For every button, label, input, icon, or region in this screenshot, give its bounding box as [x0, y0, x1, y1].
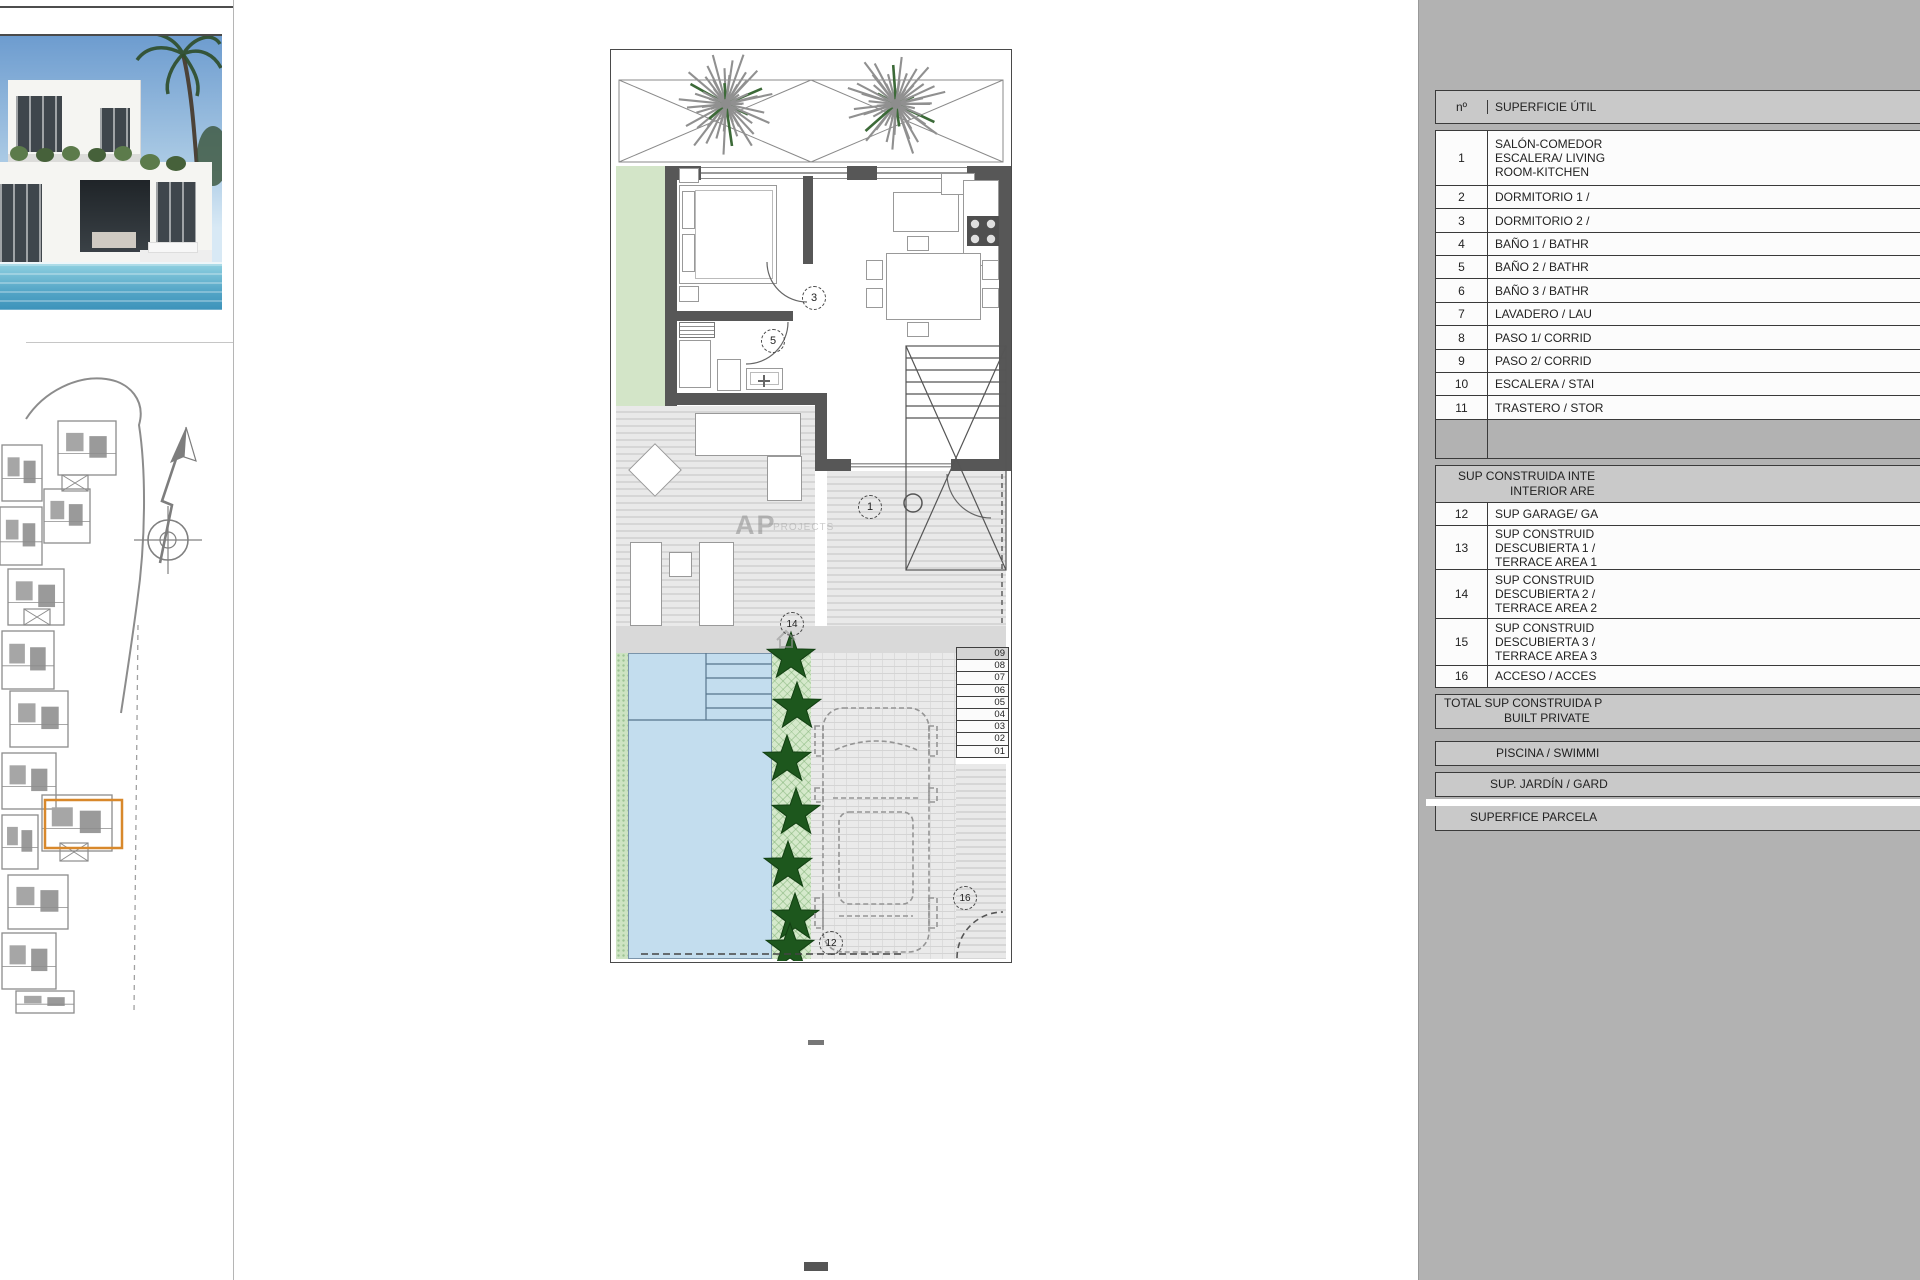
- patio-furniture: [92, 232, 136, 248]
- legend-row-8: 8 PASO 1/ CORRID: [1435, 325, 1920, 350]
- row-num: 5: [1436, 256, 1488, 279]
- legend-row-15: 15 SUP CONSTRUID DESCUBIERTA 3 / TERRACE…: [1435, 618, 1920, 666]
- room-label-12: 12: [819, 931, 843, 955]
- watermark-ap: AP: [735, 510, 777, 541]
- row-text: BAÑO 1 / BATHR: [1495, 237, 1920, 251]
- step-row: 01: [956, 745, 1009, 758]
- legend-row-3: 3 DORMITORIO 2 /: [1435, 208, 1920, 233]
- box-text: SUPERFICE PARCELA: [1436, 810, 1920, 825]
- row-num: 14: [1436, 570, 1488, 618]
- room-label-5: 5: [761, 329, 785, 353]
- legend-row-5: 5 BAÑO 2 / BATHR: [1435, 255, 1920, 280]
- legend-row-2: 2 DORMITORIO 1 /: [1435, 185, 1920, 210]
- header-num: nº: [1436, 100, 1488, 114]
- row-text: PASO 1/ CORRID: [1495, 331, 1920, 345]
- legend-panel: nº SUPERFICIE ÚTIL 1 SALÓN-COMEDOR ESCAL…: [1418, 0, 1920, 1280]
- row-text: SUP CONSTRUID: [1495, 527, 1920, 541]
- scale-mark: [808, 1040, 824, 1045]
- legend-table: nº SUPERFICIE ÚTIL 1 SALÓN-COMEDOR ESCAL…: [1435, 90, 1920, 831]
- planter-bush: [114, 146, 132, 161]
- room-label-16: 16: [953, 886, 977, 910]
- header-title: SUPERFICIE ÚTIL: [1488, 100, 1920, 114]
- top-rule: [0, 6, 233, 8]
- row-text: TERRACE AREA 2: [1495, 601, 1920, 615]
- row-num: 10: [1436, 373, 1488, 396]
- row-num: 9: [1436, 350, 1488, 373]
- row-text: ESCALERA/ LIVING: [1495, 151, 1920, 165]
- row-text: SALÓN-COMEDOR: [1495, 137, 1920, 151]
- row-text: SUP CONSTRUID: [1495, 621, 1920, 635]
- row-text: ESCALERA / STAI: [1495, 377, 1920, 391]
- planter-bush: [140, 154, 160, 170]
- legend-row-11: 11 TRASTERO / STOR: [1435, 395, 1920, 420]
- row-text: TRASTERO / STOR: [1495, 401, 1920, 415]
- planter-bush: [36, 148, 54, 162]
- legend-row-4: 4 BAÑO 1 / BATHR: [1435, 232, 1920, 257]
- planter-bush: [166, 156, 186, 171]
- sun-lounger: [148, 242, 198, 253]
- row-text: LAVADERO / LAU: [1495, 307, 1920, 321]
- legend-section-built-interior: SUP CONSTRUIDA INTE INTERIOR ARE: [1435, 465, 1920, 503]
- room-label-14: 14: [780, 612, 804, 636]
- legend-row-6: 6 BAÑO 3 / BATHR: [1435, 278, 1920, 303]
- exterior-steps: 09 08 07 06 05 04 03 02 01: [956, 648, 1009, 758]
- car-icon: [815, 708, 937, 952]
- watermark-projects: PROJECTS: [773, 522, 834, 533]
- legend-row-spacer: [1435, 419, 1920, 459]
- planter-bush: [10, 146, 28, 161]
- legend-total-built: TOTAL SUP CONSTRUIDA P BUILT PRIVATE: [1435, 694, 1920, 729]
- villa-photo: [0, 36, 222, 310]
- section-text: SUP CONSTRUIDA INTE: [1436, 469, 1920, 484]
- faucet-cross: [758, 375, 770, 387]
- planter-bush: [62, 146, 80, 161]
- gate-arc: [957, 912, 1003, 958]
- row-num: 2: [1436, 186, 1488, 209]
- row-num: 1: [1436, 131, 1488, 185]
- hedge-bush-icons: [763, 632, 821, 961]
- north-arrow-icon: [160, 427, 196, 563]
- row-num: 3: [1436, 209, 1488, 232]
- panel-white-gap: [1426, 799, 1920, 806]
- row-text: SUP CONSTRUID: [1495, 573, 1920, 587]
- legend-row-1: 1 SALÓN-COMEDOR ESCALERA/ LIVING ROOM-KI…: [1435, 130, 1920, 186]
- room-label-3: 3: [802, 286, 826, 310]
- column-symbol: [904, 494, 922, 512]
- row-text: TERRACE AREA 3: [1495, 649, 1920, 663]
- plan-linework: [611, 50, 1010, 961]
- row-text: SUP GARAGE/ GA: [1495, 507, 1920, 521]
- row-num: [1436, 420, 1488, 458]
- row-num: 12: [1436, 503, 1488, 525]
- row-num: 8: [1436, 326, 1488, 349]
- row-text: DORMITORIO 2 /: [1495, 214, 1920, 228]
- legend-row-9: 9 PASO 2/ CORRID: [1435, 349, 1920, 374]
- row-text: BAÑO 2 / BATHR: [1495, 260, 1920, 274]
- page-mark: [804, 1262, 828, 1271]
- siteplan-top-rule: [26, 342, 233, 343]
- row-text: BAÑO 3 / BATHR: [1495, 284, 1920, 298]
- property-plan-sheet: 09 08 07 06 05 04 03 02 01 3 5 1 14 12 1…: [0, 0, 1920, 1280]
- floor-plan: 09 08 07 06 05 04 03 02 01 3 5 1 14 12 1…: [610, 49, 1012, 963]
- box-text: PISCINA / SWIMMI: [1436, 746, 1920, 761]
- row-num: 7: [1436, 303, 1488, 326]
- row-text: ACCESO / ACCES: [1495, 669, 1920, 683]
- row-text: DESCUBIERTA 2 /: [1495, 587, 1920, 601]
- legend-row-13: 13 SUP CONSTRUID DESCUBIERTA 1 / TERRACE…: [1435, 525, 1920, 571]
- row-text: DESCUBIERTA 3 /: [1495, 635, 1920, 649]
- villa-upper-window: [16, 96, 62, 152]
- photo-pool-ripples: [0, 264, 222, 310]
- total-text: BUILT PRIVATE: [1436, 711, 1920, 726]
- legend-row-16: 16 ACCESO / ACCES: [1435, 665, 1920, 688]
- row-text: TERRACE AREA 1: [1495, 555, 1920, 569]
- row-num: 4: [1436, 233, 1488, 256]
- legend-row-12: 12 SUP GARAGE/ GA: [1435, 502, 1920, 526]
- row-num: 6: [1436, 279, 1488, 302]
- legend-row-14: 14 SUP CONSTRUID DESCUBIERTA 2 / TERRACE…: [1435, 569, 1920, 619]
- pergola: [619, 80, 1003, 162]
- legend-box-pool: PISCINA / SWIMMI: [1435, 741, 1920, 766]
- door-arcs: [746, 262, 991, 518]
- site-plan: [0, 375, 232, 1015]
- row-text: DORMITORIO 1 /: [1495, 190, 1920, 204]
- row-text: DESCUBIERTA 1 /: [1495, 541, 1920, 555]
- legend-box-plot: SUPERFICE PARCELA: [1435, 805, 1920, 831]
- box-text: SUP. JARDÍN / GARD: [1436, 777, 1920, 792]
- row-num: 13: [1436, 526, 1488, 570]
- row-num: 15: [1436, 619, 1488, 665]
- total-text: TOTAL SUP CONSTRUIDA P: [1436, 696, 1920, 711]
- legend-row-10: 10 ESCALERA / STAI: [1435, 372, 1920, 397]
- left-column-divider: [233, 0, 234, 1280]
- villa-glass-left: [0, 184, 42, 266]
- row-text: ROOM-KITCHEN: [1495, 165, 1920, 179]
- planter-bush: [88, 148, 106, 162]
- row-text: PASO 2/ CORRID: [1495, 354, 1920, 368]
- tree-icons: [679, 55, 945, 155]
- legend-row-7: 7 LAVADERO / LAU: [1435, 302, 1920, 327]
- pool-lines: [628, 653, 772, 720]
- staircase: [906, 346, 1006, 570]
- section-text: INTERIOR ARE: [1436, 484, 1920, 499]
- room-label-1: 1: [858, 495, 882, 519]
- row-num: 11: [1436, 396, 1488, 419]
- row-num: 16: [1436, 666, 1488, 687]
- legend-box-garden: SUP. JARDÍN / GARD: [1435, 772, 1920, 797]
- legend-header: nº SUPERFICIE ÚTIL: [1435, 90, 1920, 124]
